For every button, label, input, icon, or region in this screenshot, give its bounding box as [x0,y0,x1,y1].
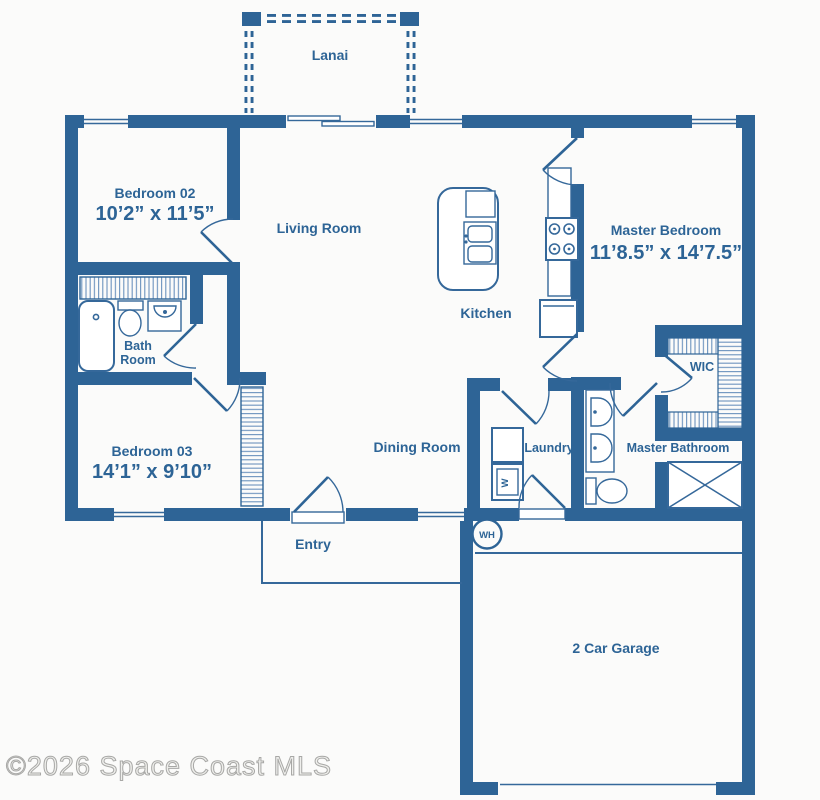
master-bathroom-label: Master Bathroom [627,441,730,455]
mls-watermark: ©2026 Space Coast MLS [6,751,332,781]
master-bedroom-window [692,115,736,128]
laundry-fixtures: W [492,428,523,500]
entry-window [418,508,464,521]
entry-porch-outline [262,521,462,583]
bedroom03-window [114,508,164,521]
bedroom03-dimensions: 14’1” x 9’10” [92,461,212,483]
refrigerator-icon [540,300,577,337]
garage-label: 2 Car Garage [572,640,659,656]
kitchen-island [438,188,498,290]
laundry-hall-door [502,391,549,424]
floorplan-page: W WH [0,0,820,800]
bath-sink-icon [148,301,181,331]
front-door [292,477,344,523]
wic-door [661,352,692,392]
laundry-garage-door [519,475,565,519]
floorplan-drawing: W WH [0,0,820,800]
bath-room-label-line2: Room [120,353,155,367]
kitchen-label: Kitchen [460,305,511,321]
washer-label: W [500,478,511,487]
water-heater-label: WH [479,530,495,541]
double-vanity-icon [586,390,614,472]
dining-room-label: Dining Room [373,439,460,455]
dryer-icon [492,428,523,462]
bathtub-icon [79,301,114,371]
bedroom02-closet [80,277,186,299]
bedroom02-dimensions: 10’2” x 11’5” [96,203,215,225]
master-bedroom-label: Master Bedroom [611,222,721,238]
bedroom02-window [84,115,128,128]
master-bedroom-dimensions: 11’8.5” x 14’7.5” [590,242,742,264]
bedroom03-label: Bedroom 03 [112,443,193,459]
living-room-label: Living Room [277,220,362,236]
toilet-icon [118,301,143,336]
entry-label: Entry [295,536,331,552]
wic-label: WIC [690,360,714,374]
shower-icon [668,462,742,508]
master-bedroom-door [543,334,577,381]
bath-room-label-line1: Bath [124,339,152,353]
kitchen-window [410,115,462,128]
wic-shelving [668,338,742,428]
master-toilet-icon [586,478,627,504]
water-heater-icon: WH [473,520,502,549]
washer-icon: W [492,464,523,500]
room-labels: Lanai Bedroom 02 10’2” x 11’5” Living Ro… [92,47,742,656]
stove-icon [546,218,578,260]
living-slider-door [286,115,376,128]
bedroom03-closet [241,387,263,506]
bedroom02-label: Bedroom 02 [115,185,196,201]
laundry-label: Laundry [524,441,573,455]
bedroom02-door [201,219,233,264]
lanai-label: Lanai [312,47,349,63]
